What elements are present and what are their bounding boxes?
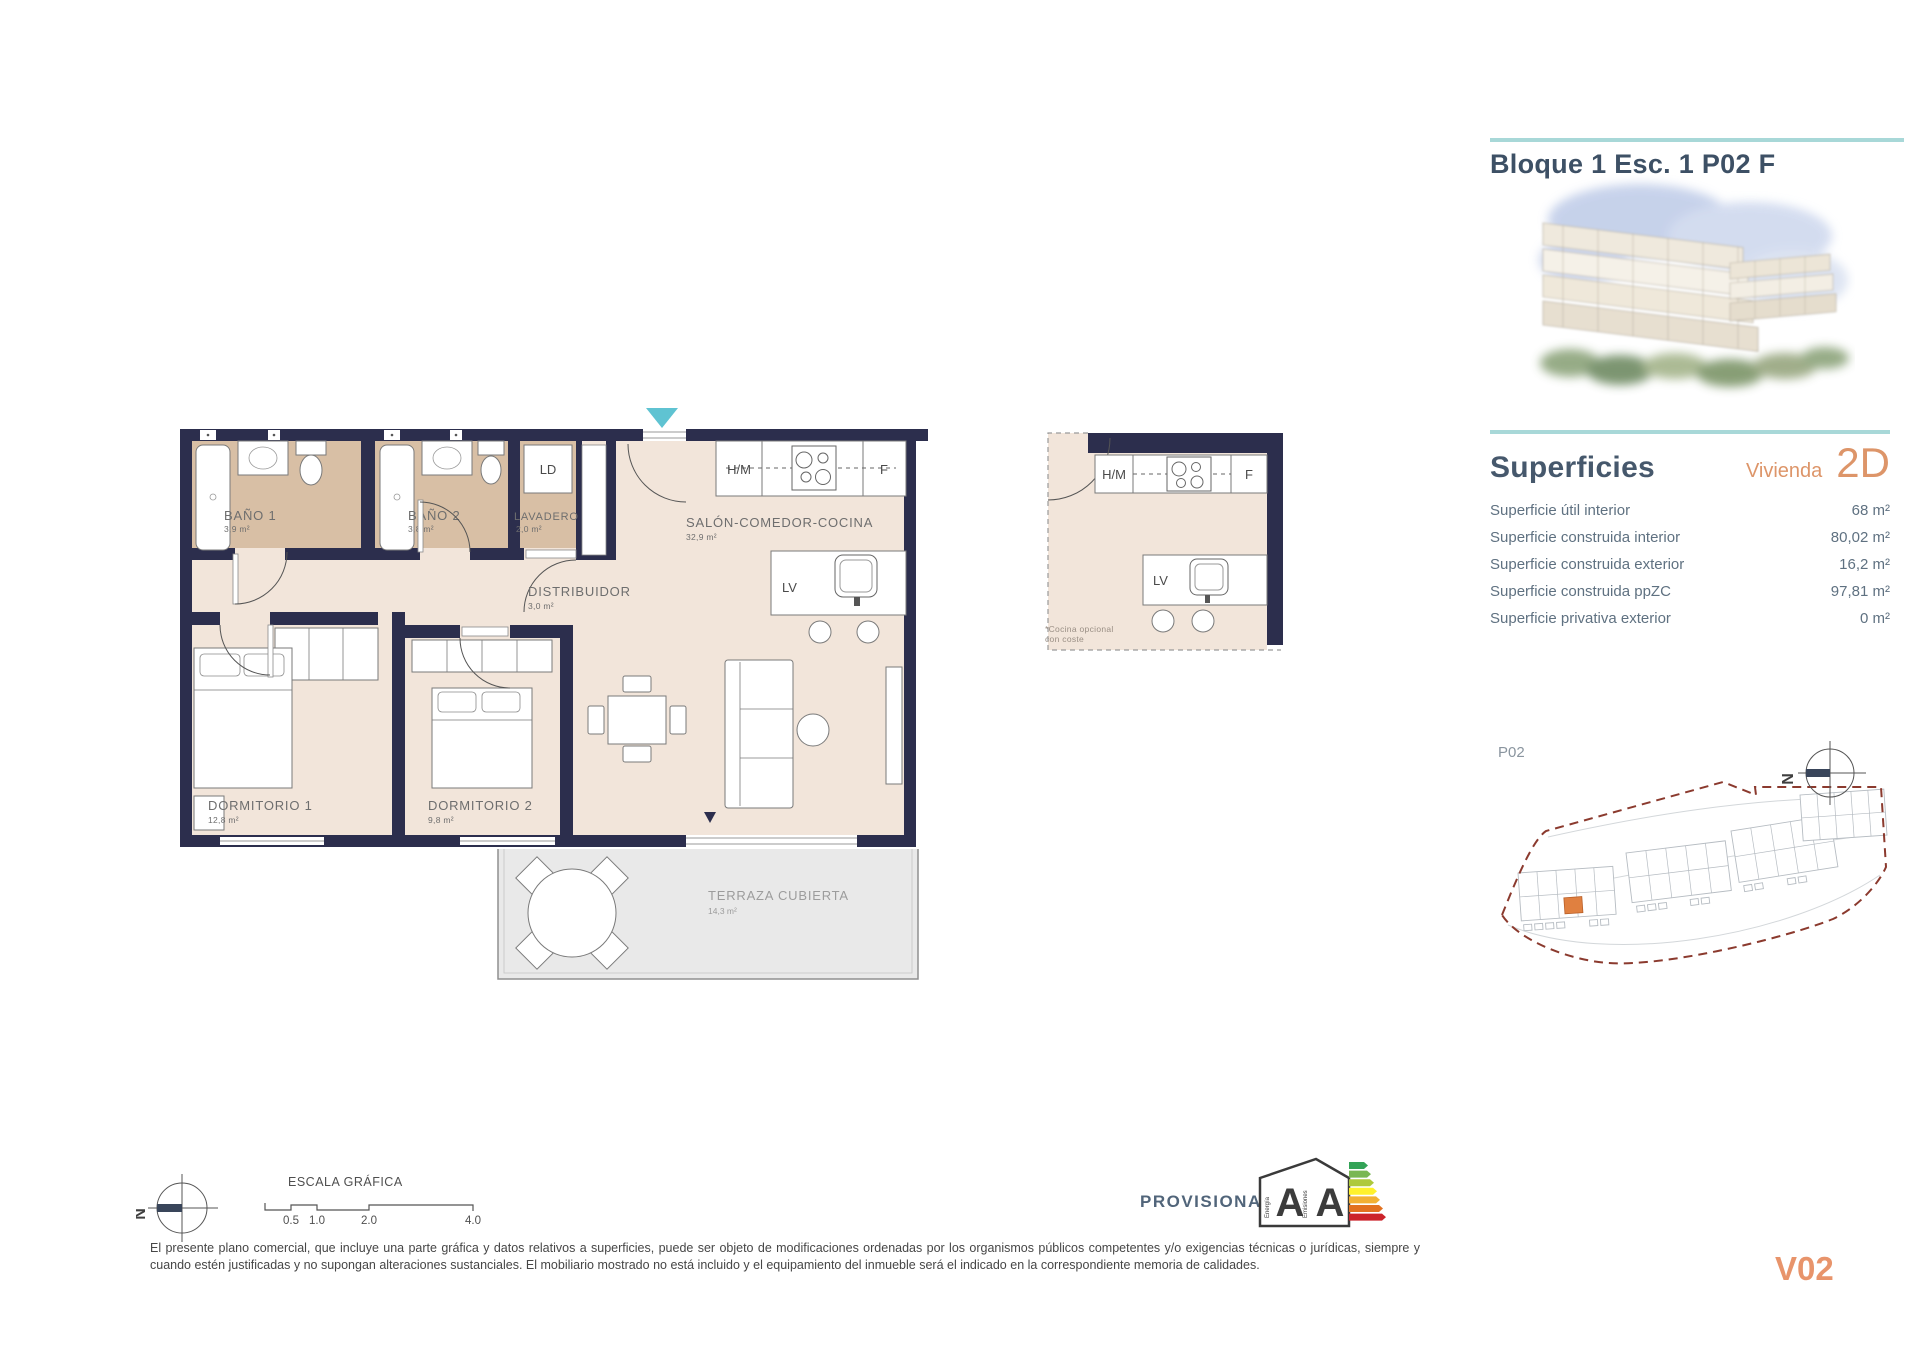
dishwasher-label: LV <box>1153 573 1168 588</box>
terrace: TERRAZA CUBIERTA 14,3 m² <box>498 849 918 979</box>
room-label-salon: SALÓN-COMEDOR-COCINA <box>686 515 873 530</box>
scale-title: ESCALA GRÁFICA <box>288 1174 403 1189</box>
shower-2 <box>380 445 414 550</box>
highlighted-unit <box>1564 897 1583 914</box>
stool <box>1152 610 1174 632</box>
room-area-terraza: 14,3 m² <box>708 906 737 916</box>
table-row: Superficie construida interior 80,02 m² <box>1490 524 1890 551</box>
room-label-dorm1: DORMITORIO 1 <box>208 798 313 813</box>
scale-tick: 1.0 <box>309 1215 325 1227</box>
door-leaf <box>526 550 576 558</box>
pillow <box>200 654 240 676</box>
dishwasher-label: LV <box>782 580 797 595</box>
energy-certificate-icon: Energía A Emisiones A <box>1252 1152 1392 1232</box>
surface-value: 68 m² <box>1852 497 1890 524</box>
pillow <box>244 654 284 676</box>
floorplan-sheet: { "header": { "title": "Bloque 1 Esc. 1 … <box>0 0 1920 1357</box>
building-cluster <box>1626 841 1733 913</box>
superficies-panel: Superficies Vivienda 2D Superficie útil … <box>1490 430 1890 632</box>
hob <box>792 446 836 490</box>
scale-tick: 2.0 <box>361 1215 377 1227</box>
fridge-label: F <box>880 462 888 477</box>
table-row: Superficie privativa exterior 0 m² <box>1490 605 1890 632</box>
building-cluster <box>1800 789 1887 841</box>
surface-value: 97,81 m² <box>1831 578 1890 605</box>
chair <box>623 676 651 692</box>
table-row: Superficie construida ppZC 97,81 m² <box>1490 578 1890 605</box>
graphic-scale: ESCALA GRÁFICA 0.5 1.0 2.0 4.0 <box>245 1172 535 1230</box>
superficies-heading: Superficies <box>1490 451 1746 485</box>
pillow <box>438 692 476 712</box>
plan-version: V02 <box>1775 1250 1834 1288</box>
scale-tick: 0.5 <box>283 1215 299 1227</box>
vegetation-watercolor <box>1540 347 1849 387</box>
stool <box>1192 610 1214 632</box>
terrace-door <box>686 835 857 847</box>
superficies-table: Superficie útil interior 68 m² Superfici… <box>1490 497 1890 632</box>
surface-value: 16,2 m² <box>1839 551 1890 578</box>
room-area-dorm2: 9,8 m² <box>428 815 454 825</box>
room-label-lavadero: LAVADERO <box>514 511 579 523</box>
vivienda-label: Vivienda <box>1746 460 1822 483</box>
chair <box>623 746 651 762</box>
door-leaf <box>268 625 273 677</box>
shower-1 <box>196 445 230 550</box>
surface-label: Superficie útil interior <box>1490 497 1630 524</box>
room-area-dorm1: 12,8 m² <box>208 815 239 825</box>
room-label-distribuidor: DISTRIBUIDOR <box>528 584 631 599</box>
vivienda-code: 2D <box>1836 442 1890 484</box>
room-area-salon: 32,9 m² <box>686 532 717 542</box>
north-letter: N <box>136 1208 149 1220</box>
entrance-arrow-icon <box>646 408 678 428</box>
room-label-bano2: BAÑO 2 <box>408 508 460 523</box>
toilet-1 <box>296 441 326 455</box>
north-letter: N <box>1780 773 1797 785</box>
tall-cabinet <box>582 445 606 555</box>
door-leaf <box>462 627 508 636</box>
fridge-label: F <box>1245 467 1253 482</box>
site-plan: P02 <box>1488 735 1898 980</box>
scale-tick: 4.0 <box>465 1215 481 1227</box>
kitchen-note-line2: con coste <box>1045 634 1084 644</box>
toilet-2 <box>478 441 504 455</box>
chair <box>670 706 686 734</box>
table-row: Superficie construida exterior 16,2 m² <box>1490 551 1890 578</box>
hob-oven-label: H/M <box>727 462 751 477</box>
surface-label: Superficie construida exterior <box>1490 551 1684 578</box>
room-label-terraza: TERRAZA CUBIERTA <box>708 888 849 903</box>
kitchen-option-plan: H/M F LV *Cocina opcional con coste <box>1035 425 1295 660</box>
room-label-dorm2: DORMITORIO 2 <box>428 798 533 813</box>
surface-label: Superficie construida ppZC <box>1490 578 1671 605</box>
superficies-divider <box>1490 430 1890 434</box>
energy-letter: A <box>1276 1181 1305 1225</box>
surface-value: 0 m² <box>1860 605 1890 632</box>
stool <box>857 621 879 643</box>
door-leaf <box>418 500 423 552</box>
scale-bar <box>265 1203 473 1211</box>
north-compass-icon: N <box>136 1166 228 1246</box>
surface-label: Superficie privativa exterior <box>1490 605 1671 632</box>
chair <box>588 706 604 734</box>
terrace-table <box>528 869 616 957</box>
kitchen-counter: H/M F <box>716 441 906 496</box>
surface-value: 80,02 m² <box>1831 524 1890 551</box>
site-plan-level-label: P02 <box>1498 744 1525 761</box>
room-area-lavadero: 2,0 m² <box>516 524 542 534</box>
room-area-distribuidor: 3,0 m² <box>528 601 554 611</box>
table-row: Superficie útil interior 68 m² <box>1490 497 1890 524</box>
energy-word: Energía <box>1265 1196 1271 1218</box>
dining-table <box>608 696 666 744</box>
surface-label: Superficie construida interior <box>1490 524 1680 551</box>
emissions-letter: A <box>1316 1181 1345 1225</box>
room-area-bano1: 3,9 m² <box>224 524 250 534</box>
washer-label: LD <box>540 462 557 477</box>
kitchen-note-line1: *Cocina opcional <box>1045 624 1114 634</box>
floor-plan: TERRAZA CUBIERTA 14,3 m² <box>180 400 932 992</box>
side-table <box>797 714 829 746</box>
hob-oven-label: H/M <box>1102 467 1126 482</box>
room-label-bano1: BAÑO 1 <box>224 508 276 523</box>
sofa <box>725 660 793 808</box>
energy-rating-bars <box>1349 1162 1386 1221</box>
title-divider <box>1490 138 1904 142</box>
door-leaf <box>233 554 238 604</box>
pillow <box>482 692 520 712</box>
tv-unit <box>886 667 902 784</box>
kitchen-counter-detail: H/M F <box>1095 455 1267 493</box>
emissions-word: Emisiones <box>1303 1190 1309 1218</box>
building-cluster <box>1518 866 1617 930</box>
building-render-image <box>1525 168 1855 413</box>
stool <box>809 621 831 643</box>
legal-disclaimer: El presente plano comercial, que incluye… <box>150 1240 1420 1274</box>
